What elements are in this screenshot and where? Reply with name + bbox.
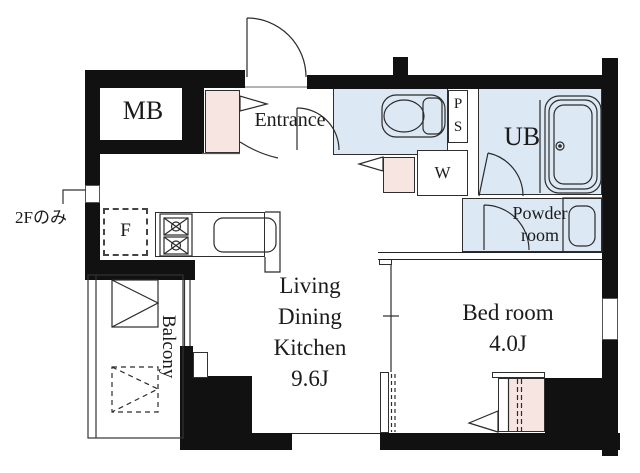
closet-hanger-lines [509,378,522,432]
label-washer: W [417,162,468,183]
label-bedroom: Bed room 4.0J [428,297,588,359]
label-ldk-line1: Living [245,270,375,301]
label-floor-note: 2Fのみ [4,207,78,228]
balcony-equipment-pad-dashed [112,367,158,412]
label-refrigerator: F [103,219,148,243]
label-pipe-space-p: P [448,93,468,116]
label-meter-box: MB [103,95,183,128]
toilet-icon [382,95,445,137]
floor-note-leader-line [63,190,86,204]
label-entrance: Entrance [240,108,340,133]
label-ldk-line3: Kitchen [245,332,375,363]
label-pipe-space: P S [448,93,468,140]
label-ldk: Living Dining Kitchen 9.6J [245,270,375,394]
balcony-equipment-pad [112,280,158,327]
label-ldk-size: 9.6J [245,363,375,394]
bedroom-partition [383,265,399,432]
balcony-sliding-door [185,280,191,346]
label-bedroom-size: 4.0J [428,328,588,359]
kitchen-counter-edge [202,154,280,273]
unit-bath-door-swing [479,153,523,196]
label-powder-room: Powder room [495,203,585,246]
label-unit-bath: UB [487,121,557,154]
label-bedroom-name: Bed room [428,297,588,328]
entrance-door-swing [245,18,307,87]
label-powder-line2: room [495,225,585,247]
label-powder-line1: Powder [495,203,585,225]
floor-plan: MB Entrance P S W UB Powder room F 2Fのみ … [0,0,640,473]
label-ldk-line2: Dining [245,301,375,332]
label-balcony: Balcony [156,287,180,407]
label-pipe-space-s: S [448,116,468,139]
kitchen-sink-icon [214,218,276,252]
stove-icon [160,214,192,256]
